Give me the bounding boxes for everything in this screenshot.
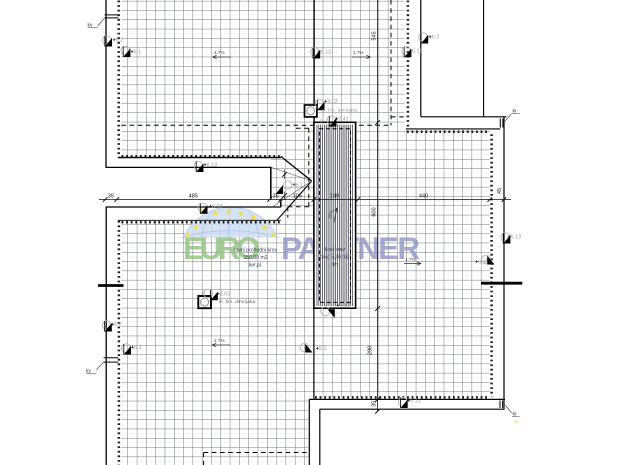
svg-text:+6.2: +6.2 [113, 38, 124, 44]
svg-text:pov: 5,46 m2: pov: 5,46 m2 [320, 255, 350, 261]
svg-text:600: 600 [372, 207, 378, 216]
svg-text:35: 35 [108, 194, 114, 200]
svg-text:1.7%: 1.7% [405, 257, 415, 262]
svg-text:+6.13: +6.13 [508, 235, 522, 241]
svg-text:+3.03: +3.03 [324, 99, 338, 105]
svg-text:1.7%: 1.7% [214, 50, 224, 55]
svg-text:sl. lim. dimnjaka: sl. lim. dimnjaka [219, 299, 256, 304]
svg-text:+6.13: +6.13 [317, 50, 331, 56]
svg-text:+6.13: +6.13 [204, 162, 218, 168]
svg-text:1.7%: 1.7% [353, 50, 363, 55]
svg-text:+6.13: +6.13 [407, 399, 421, 405]
svg-text:45: 45 [497, 188, 503, 194]
svg-text:lim: lim [332, 262, 339, 268]
svg-text:ravni prohodni krov: ravni prohodni krov [234, 248, 278, 254]
svg-text:+6.13: +6.13 [209, 204, 223, 210]
svg-text:290: 290 [368, 346, 374, 355]
svg-text:105: 105 [293, 194, 302, 200]
svg-text:35: 35 [372, 401, 378, 407]
svg-text:+3.03: +3.03 [217, 292, 231, 298]
svg-text:+5.1: +5.1 [131, 345, 142, 351]
svg-text:ø: ø [202, 291, 205, 297]
svg-text:sl. lim. dimnjaka: sl. lim. dimnjaka [322, 108, 359, 113]
svg-text:+6.2: +6.2 [111, 322, 122, 328]
svg-text:150,50 m2: 150,50 m2 [243, 255, 267, 261]
svg-text:440: 440 [419, 194, 428, 200]
svg-text:+6.3: +6.3 [429, 35, 440, 41]
svg-text:+6.11: +6.11 [409, 49, 422, 55]
svg-text:ø: ø [320, 119, 323, 125]
svg-text:1.7%: 1.7% [214, 338, 224, 343]
svg-text:545: 545 [372, 31, 378, 40]
svg-text:ker.pl.: ker.pl. [249, 263, 263, 269]
svg-text:+5.1: +5.1 [131, 50, 142, 56]
svg-text:+6.1: +6.1 [293, 183, 303, 189]
svg-text:140: 140 [330, 194, 339, 200]
svg-text:+5.1: +5.1 [316, 346, 327, 352]
svg-text:485: 485 [189, 194, 198, 200]
svg-text:+2.41: +2.41 [335, 117, 349, 123]
svg-text:kosi krov: kosi krov [325, 247, 346, 253]
svg-text:+6.11: +6.11 [475, 260, 488, 266]
svg-text:+6.13: +6.13 [336, 303, 350, 309]
svg-text:35: 35 [272, 194, 278, 200]
